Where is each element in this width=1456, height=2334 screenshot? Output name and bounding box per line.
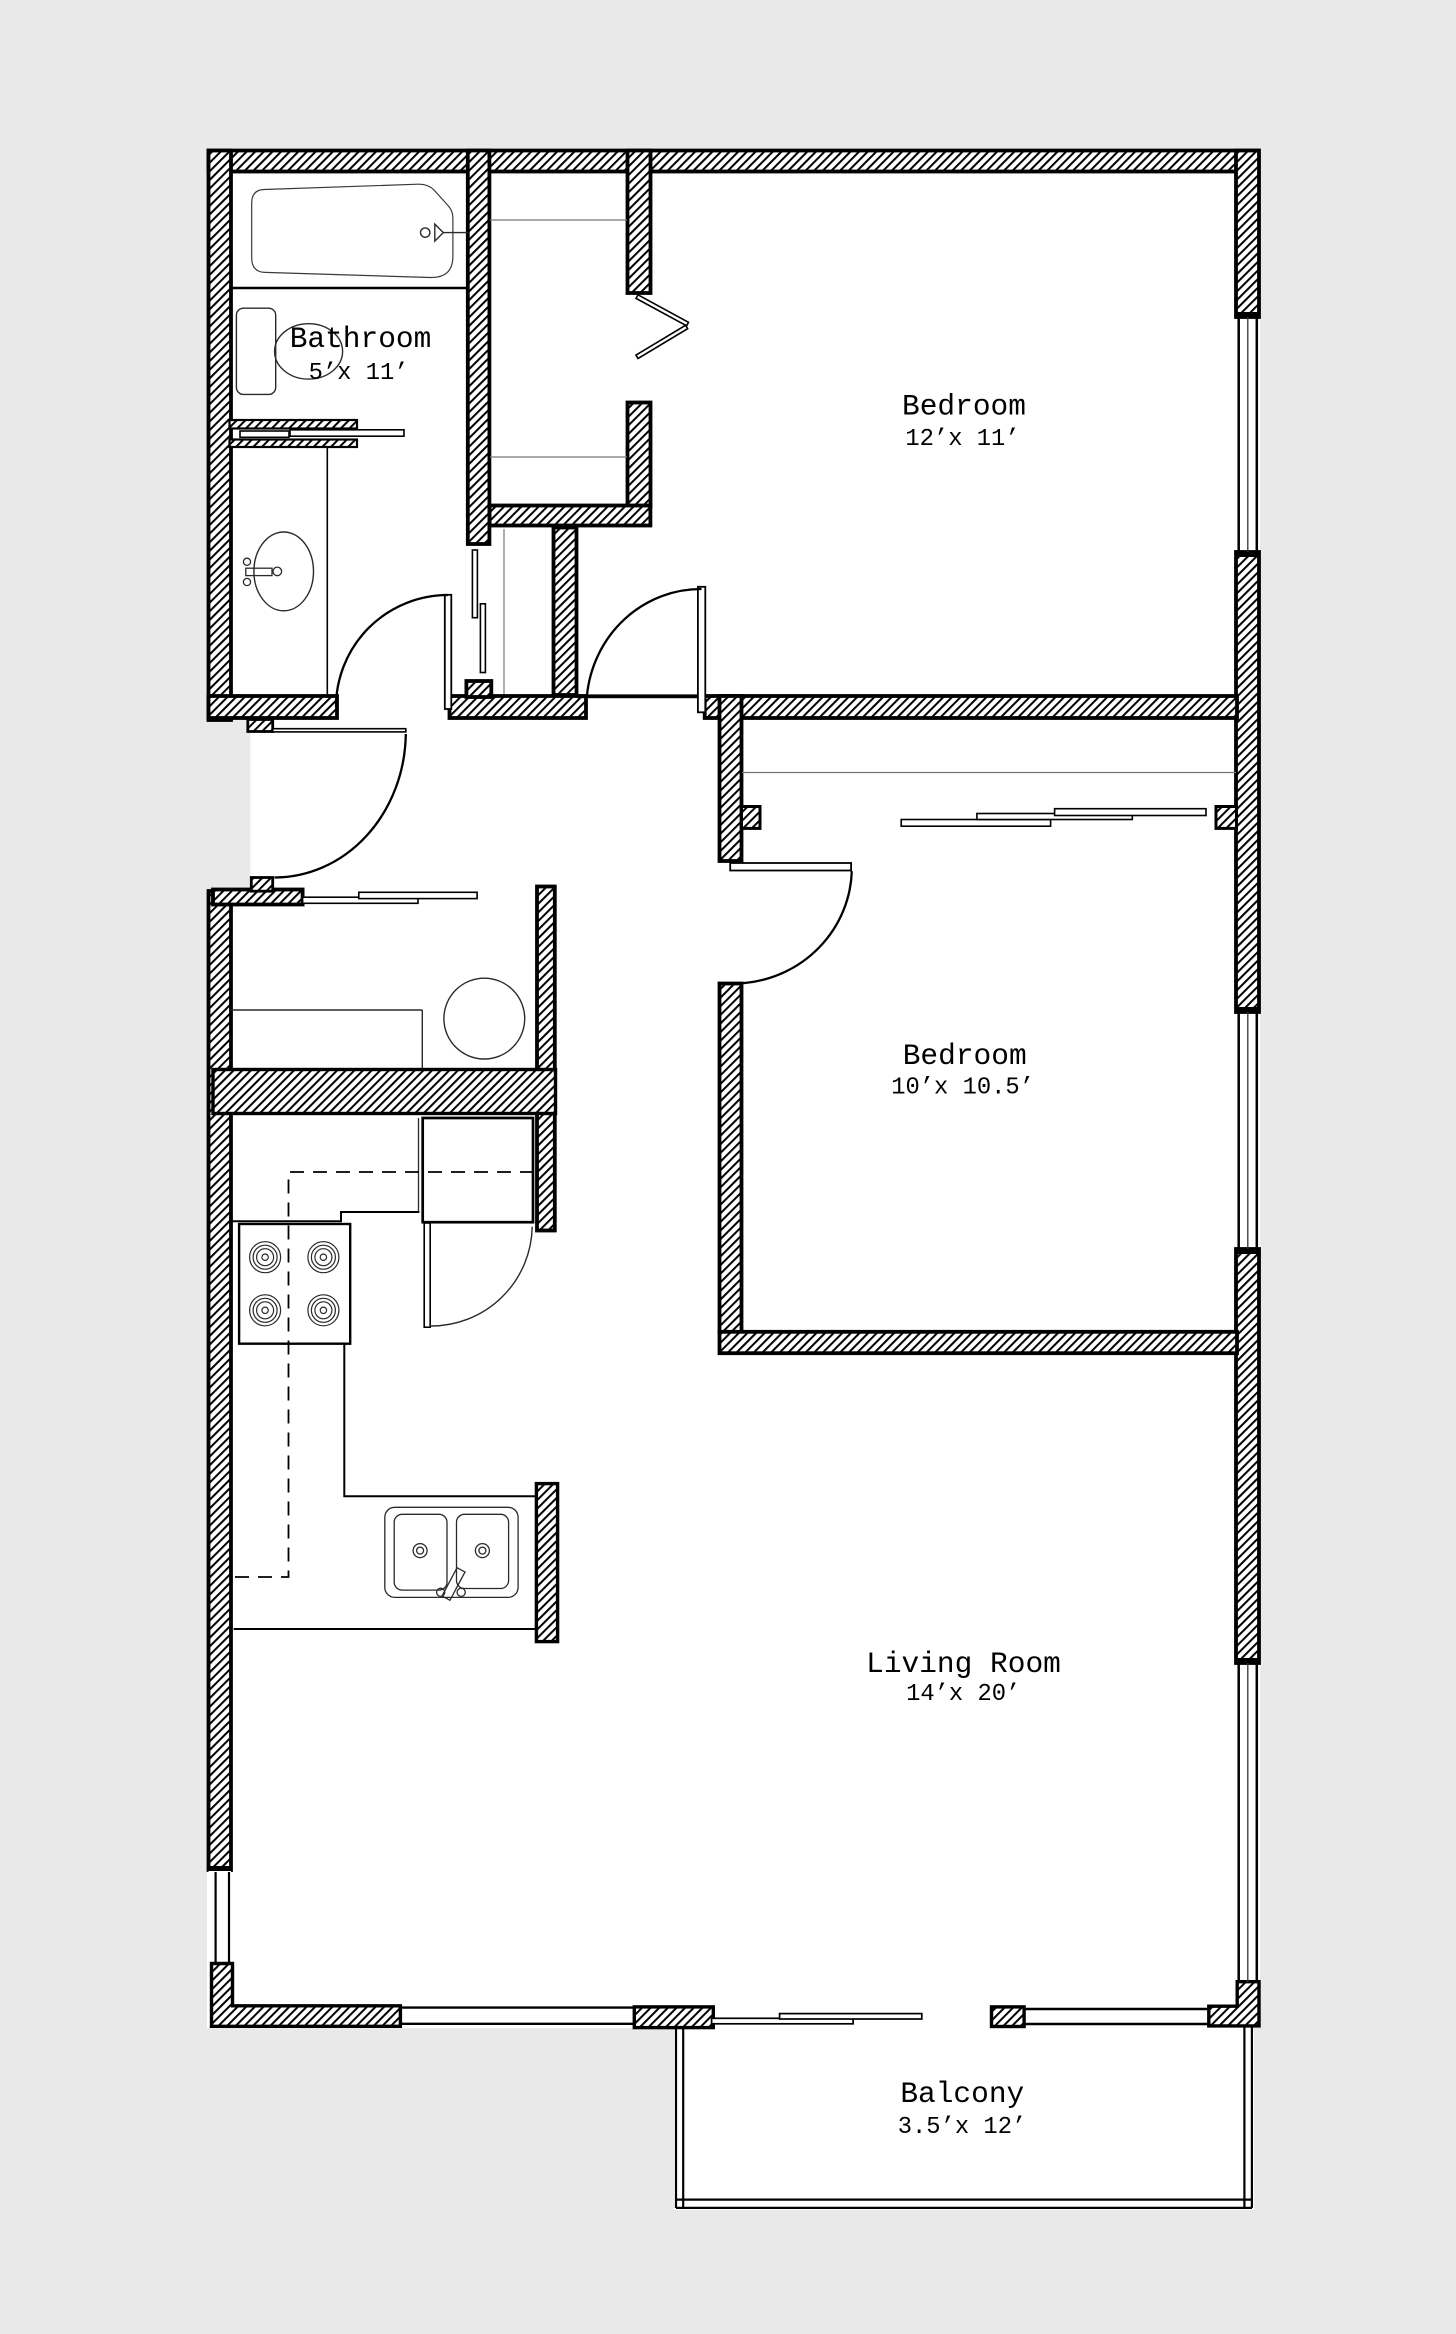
svg-text:10’x 10.5’: 10’x 10.5’ xyxy=(891,1075,1034,1102)
svg-text:Bedroom: Bedroom xyxy=(903,1039,1027,1073)
svg-text:3.5’x 12’: 3.5’x 12’ xyxy=(898,2114,1027,2141)
svg-text:14’x 20’: 14’x 20’ xyxy=(906,1681,1020,1708)
svg-text:Bedroom: Bedroom xyxy=(902,390,1026,424)
svg-text:5’x 11’: 5’x 11’ xyxy=(309,360,409,387)
svg-text:12’x 11’: 12’x 11’ xyxy=(905,426,1019,453)
svg-text:Balcony: Balcony xyxy=(900,2077,1024,2111)
svg-text:Living Room: Living Room xyxy=(866,1647,1061,1681)
svg-text:Bathroom: Bathroom xyxy=(290,322,432,356)
